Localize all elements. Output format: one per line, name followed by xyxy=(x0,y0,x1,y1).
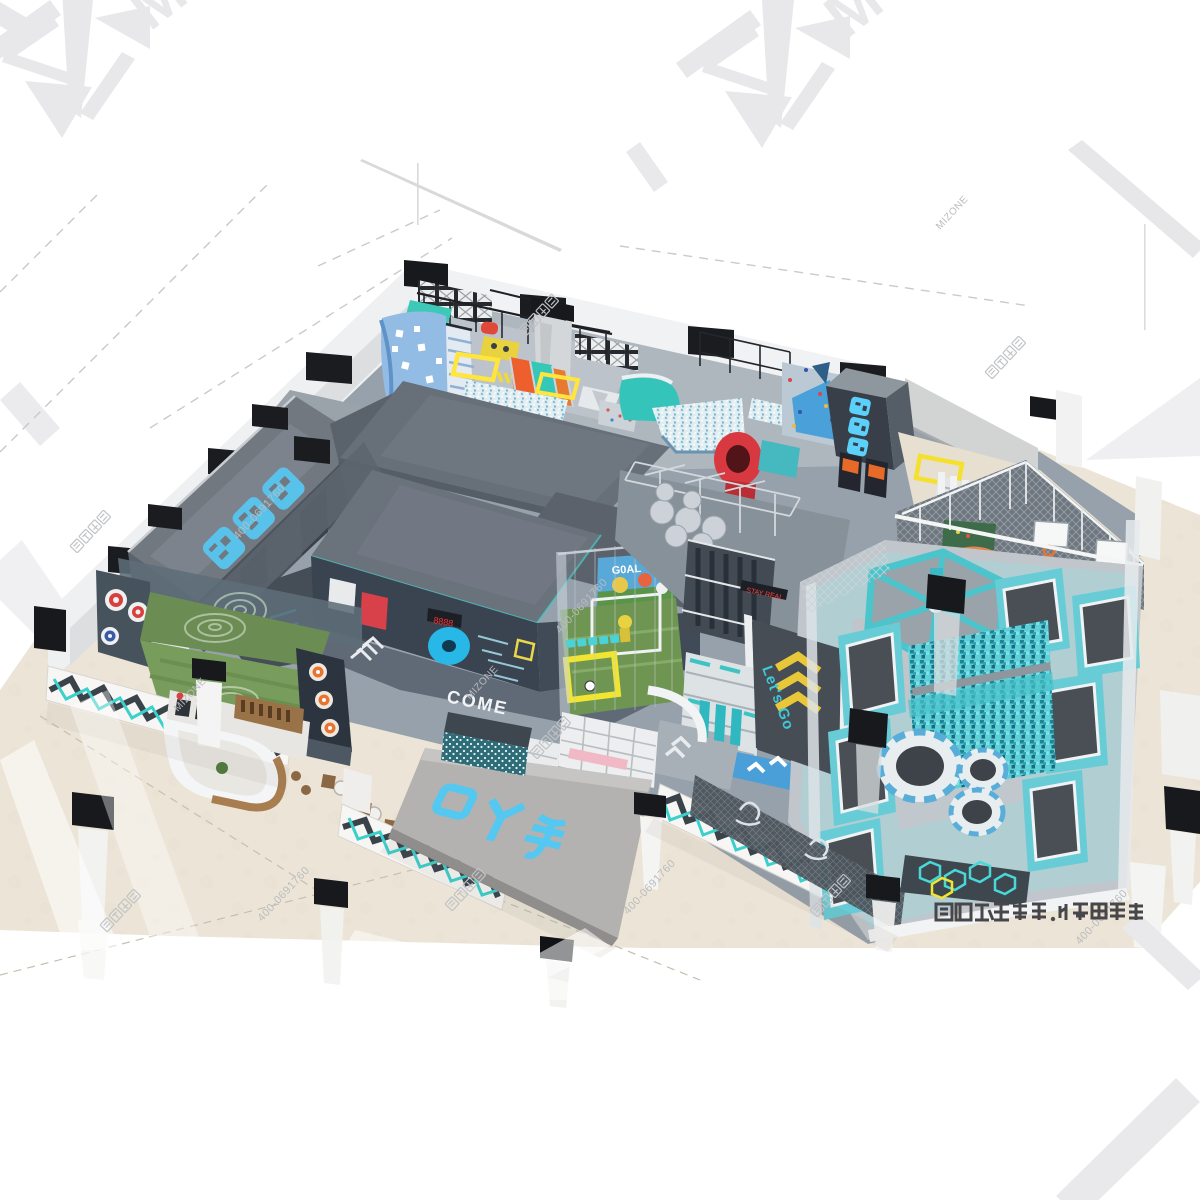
svg-text:G0AL: G0AL xyxy=(611,563,641,577)
